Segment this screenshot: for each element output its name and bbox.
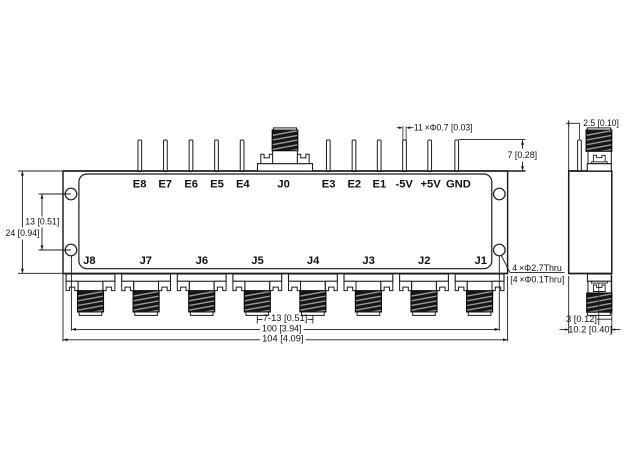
svg-text:E7: E7 <box>158 178 172 190</box>
svg-text:100 [3.94]: 100 [3.94] <box>262 324 302 334</box>
svg-text:E8: E8 <box>133 178 147 190</box>
svg-text:10.2 [0.40]: 10.2 [0.40] <box>568 324 612 334</box>
svg-text:E3: E3 <box>322 178 336 190</box>
svg-text:E5: E5 <box>210 178 224 190</box>
svg-text:104 [4.09]: 104 [4.09] <box>262 333 303 343</box>
svg-text:24 [0.94]: 24 [0.94] <box>6 228 40 238</box>
svg-text:J4: J4 <box>307 255 320 267</box>
svg-text:+5V: +5V <box>420 178 441 190</box>
svg-text:[4 ×Φ0.1Thru]: [4 ×Φ0.1Thru] <box>510 274 564 284</box>
svg-text:7-13 [0.51]: 7-13 [0.51] <box>263 313 307 323</box>
svg-text:4 ×Φ2.7Thru: 4 ×Φ2.7Thru <box>512 263 562 273</box>
svg-text:GND: GND <box>446 178 471 190</box>
svg-text:J8: J8 <box>83 255 95 267</box>
svg-text:2.5 [0.10]: 2.5 [0.10] <box>583 118 619 128</box>
svg-text:7 [0.28]: 7 [0.28] <box>508 150 538 160</box>
svg-text:J0: J0 <box>277 178 289 190</box>
svg-text:J3: J3 <box>362 255 374 267</box>
svg-text:-5V: -5V <box>395 178 413 190</box>
svg-text:11 ×Φ0.7 [0.03]: 11 ×Φ0.7 [0.03] <box>414 123 473 133</box>
svg-text:J7: J7 <box>140 255 152 267</box>
svg-text:E6: E6 <box>184 178 198 190</box>
svg-text:J1: J1 <box>474 255 486 267</box>
svg-text:13 [0.51]: 13 [0.51] <box>25 217 59 227</box>
svg-text:E2: E2 <box>347 178 361 190</box>
svg-text:J2: J2 <box>418 255 430 267</box>
svg-text:E4: E4 <box>236 178 250 190</box>
svg-text:E1: E1 <box>373 178 387 190</box>
svg-text:3 [0.12]: 3 [0.12] <box>566 314 597 324</box>
svg-text:J6: J6 <box>196 255 208 267</box>
svg-text:J5: J5 <box>251 255 263 267</box>
